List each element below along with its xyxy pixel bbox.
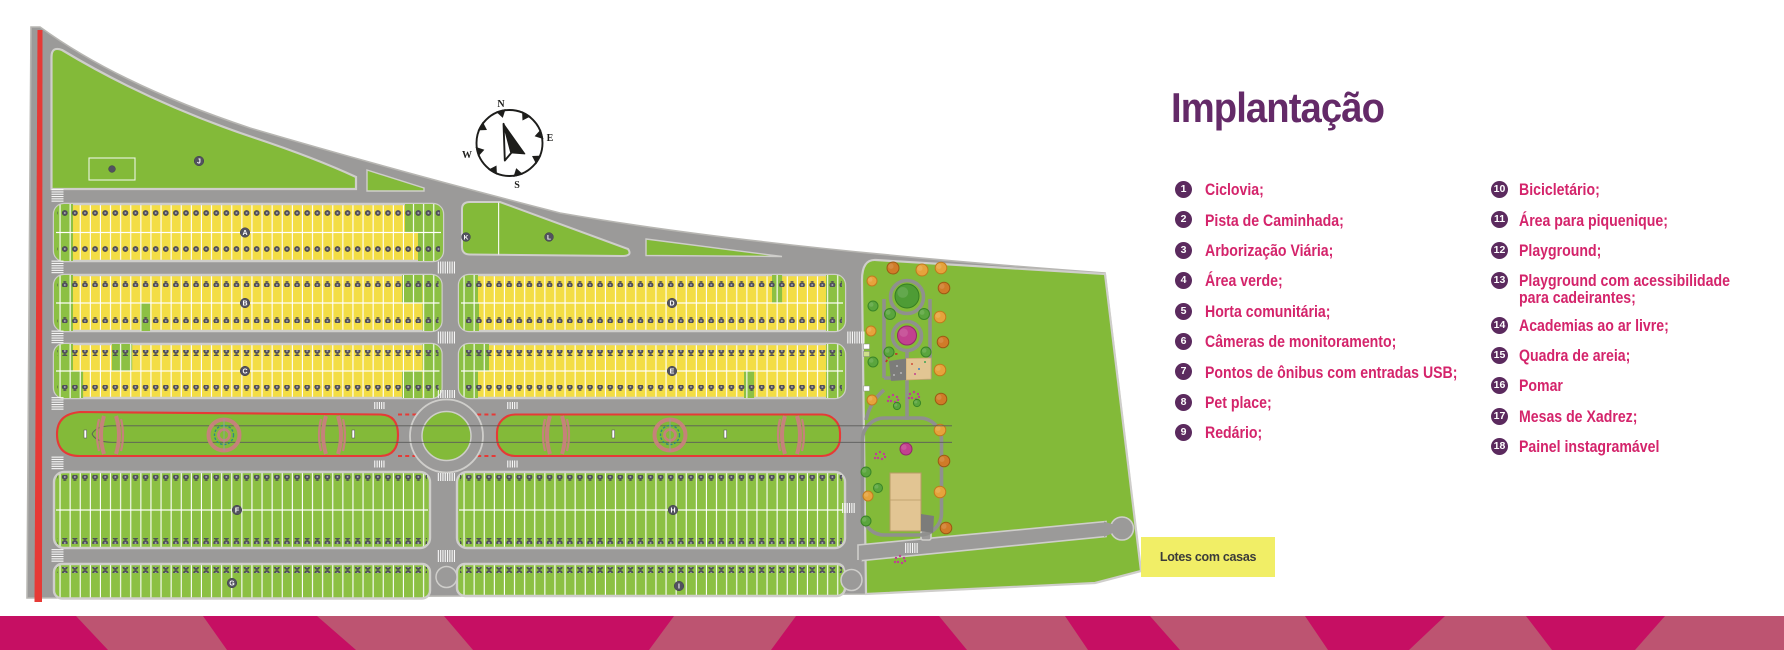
svg-text:L: L — [547, 235, 551, 242]
svg-text:E: E — [547, 133, 554, 144]
svg-text:K: K — [464, 235, 469, 242]
svg-text:J: J — [197, 158, 201, 165]
svg-text:H: H — [670, 507, 675, 514]
svg-text:E: E — [670, 368, 675, 375]
svg-text:I: I — [678, 583, 680, 590]
svg-text:G: G — [229, 580, 235, 587]
svg-text:D: D — [669, 300, 674, 307]
svg-text:W: W — [462, 150, 472, 161]
svg-text:C: C — [242, 368, 247, 375]
svg-text:B: B — [242, 300, 247, 307]
svg-text:N: N — [497, 99, 505, 110]
svg-text:S: S — [514, 180, 520, 191]
svg-text:A: A — [242, 230, 247, 237]
svg-text:F: F — [235, 507, 240, 514]
